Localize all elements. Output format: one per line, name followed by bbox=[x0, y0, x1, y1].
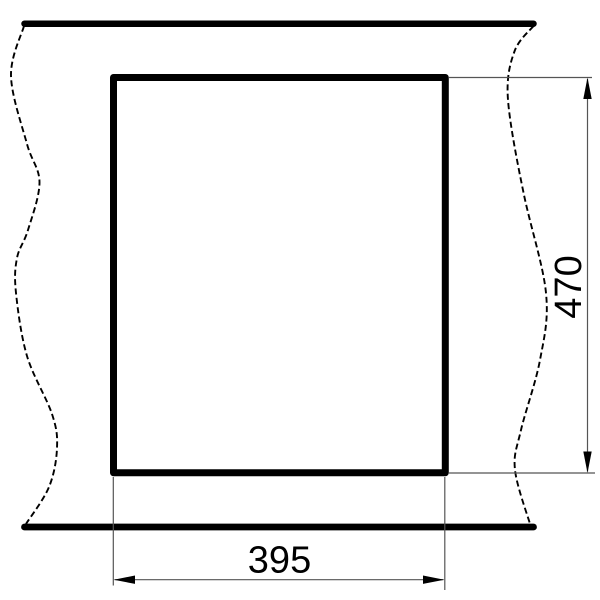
svg-text:470: 470 bbox=[548, 255, 590, 318]
svg-text:395: 395 bbox=[248, 540, 311, 582]
